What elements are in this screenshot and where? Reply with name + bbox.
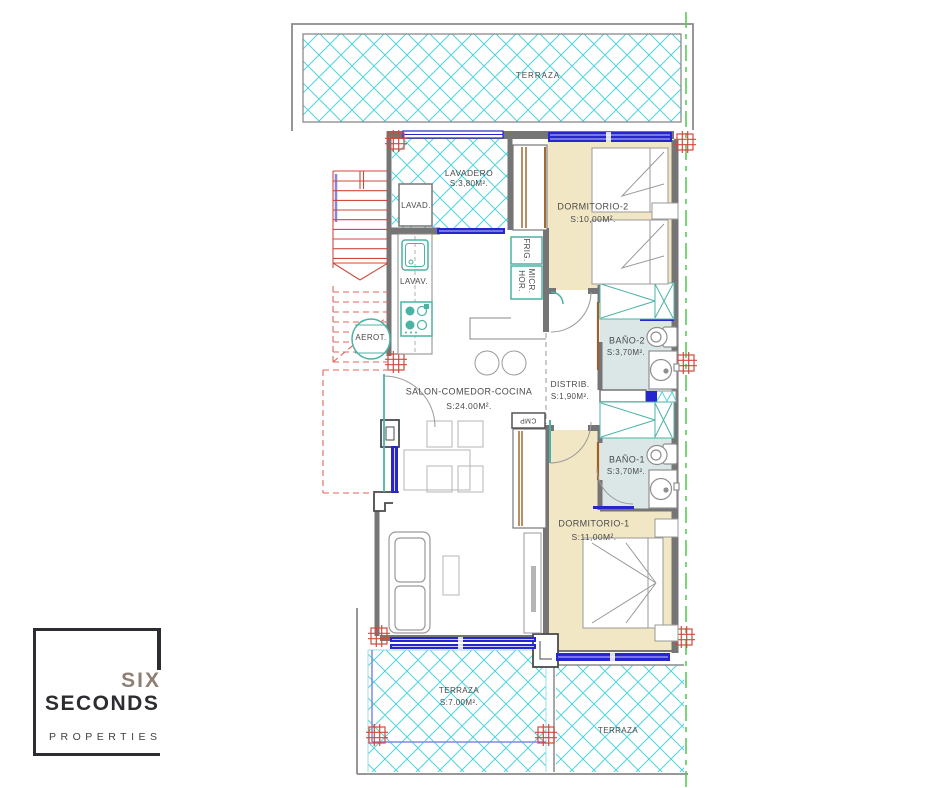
shower-bano2 xyxy=(600,283,674,319)
room-label-salon: SALON-COMEDOR-COCINA xyxy=(406,388,533,397)
room-label-terraza-inferior: TERRAZA xyxy=(439,687,479,695)
wardrobe-dormitorio1 xyxy=(513,429,546,528)
tv-cabinet xyxy=(524,533,541,633)
room-area-bano1: S:3,70M². xyxy=(607,468,645,476)
coffee-table xyxy=(443,556,459,595)
room-area-lavadero: S:3,80M². xyxy=(450,180,488,188)
room-area-salon: S:24.00M². xyxy=(446,402,492,411)
logo-text-seconds: SECONDS xyxy=(45,692,159,716)
logo-frame-stub xyxy=(157,628,161,670)
logo-text-six: SIX xyxy=(90,669,161,693)
room-label-lavadero: LAVADERO xyxy=(445,169,493,178)
room-label-bano1: BAÑO-1 xyxy=(609,456,645,465)
room-area-dormitorio1: S:11,00M². xyxy=(572,533,617,542)
room-label-bano2: BAÑO-2 xyxy=(609,337,645,346)
appliance-label-aerotermia: AEROT. xyxy=(355,334,386,342)
room-label-terraza-top: TERRAZA xyxy=(516,72,560,80)
sofa xyxy=(389,532,430,633)
shower-bano1 xyxy=(600,402,674,438)
wardrobe-dormitorio2 xyxy=(513,145,547,230)
staircase-lower-dashed xyxy=(323,286,390,493)
toilet-bano2 xyxy=(647,327,677,347)
room-label-terraza-lateral: TERRAZA xyxy=(598,727,638,735)
sink-bano2 xyxy=(649,351,679,389)
room-area-terraza-inferior: S:7.00M². xyxy=(440,699,478,707)
room-area-dormitorio2: S:10,00M². xyxy=(570,215,616,224)
vent-window xyxy=(646,391,676,402)
appliance-label-horno: HOR. xyxy=(517,270,525,292)
appliance-label-frigorifico: FRIG. xyxy=(522,238,530,261)
room-label-distribuidor: DISTRIB. xyxy=(550,380,589,389)
appliance-label-microondas: MICR. xyxy=(527,269,535,294)
room-area-distribuidor: S:1,90M². xyxy=(551,393,589,401)
terrace-top-floor xyxy=(292,24,693,131)
cooktop xyxy=(401,302,432,336)
appliance-label-lavadora: LAVAD. xyxy=(401,202,431,210)
room-label-dormitorio2: DORMITORIO-2 xyxy=(557,203,628,212)
floorplan-canvas: TERRAZA LAVADERO S:3,80M². LAVAD. DORMIT… xyxy=(0,0,940,788)
dining-set xyxy=(404,421,483,492)
appliance-label-lavavajillas: LAVAV. xyxy=(400,278,428,286)
staircase xyxy=(333,171,388,280)
room-area-bano2: S:3,70M². xyxy=(607,349,645,357)
toilet-bano1 xyxy=(647,444,677,465)
logo-text-properties: PROPERTIES xyxy=(49,731,162,743)
closet-label-cmp: CMP xyxy=(520,417,537,424)
sink-bano1 xyxy=(649,470,679,508)
room-label-dormitorio1: DORMITORIO-1 xyxy=(558,520,629,529)
